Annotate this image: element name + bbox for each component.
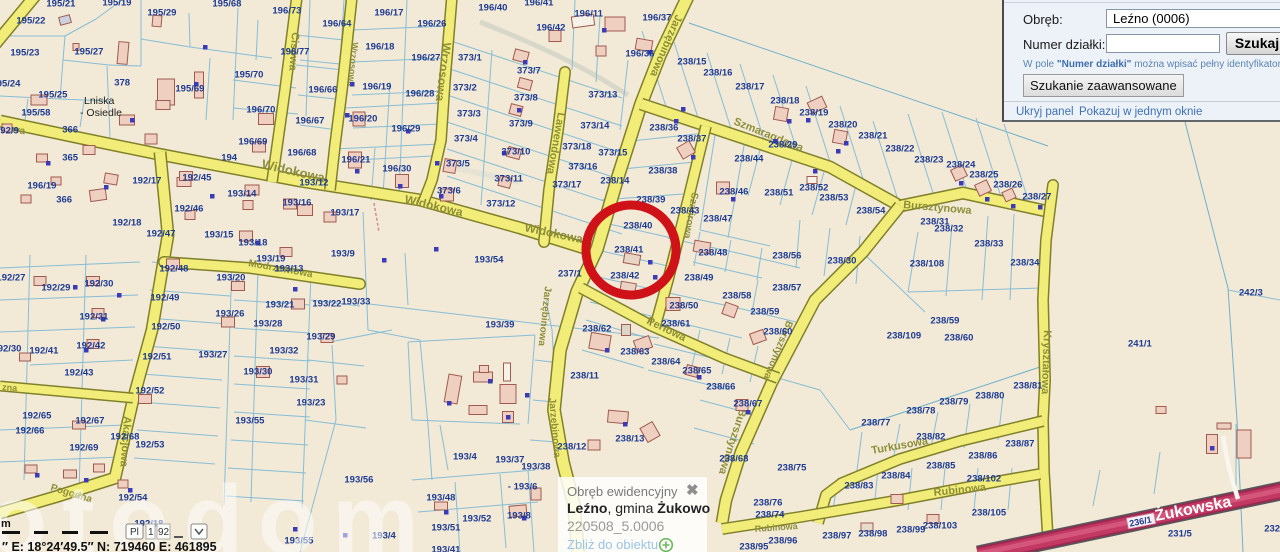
svg-text:238/21: 238/21 (858, 131, 888, 142)
svg-text:238/19: 238/19 (799, 108, 828, 119)
svg-text:92: 92 (158, 527, 170, 538)
svg-text:238/33: 238/33 (974, 239, 1003, 250)
svg-text:373/5: 373/5 (446, 159, 470, 170)
svg-text:242/3: 242/3 (1239, 288, 1263, 299)
svg-text:373/11: 373/11 (494, 174, 523, 185)
svg-text:193/17: 193/17 (330, 208, 359, 219)
svg-text:238/87: 238/87 (1005, 439, 1034, 450)
svg-text:373/10: 373/10 (501, 147, 530, 158)
svg-text:193/54: 193/54 (474, 255, 504, 266)
svg-text:193/12: 193/12 (299, 178, 328, 189)
svg-text:196/70: 196/70 (246, 105, 275, 116)
svg-text:196/27: 196/27 (411, 53, 440, 64)
svg-text:192/43: 192/43 (64, 368, 93, 379)
svg-text:231/5: 231/5 (1168, 529, 1192, 540)
svg-text:238/17: 238/17 (735, 82, 764, 93)
svg-text:193/32: 193/32 (269, 346, 298, 357)
svg-text:192/45: 192/45 (182, 173, 212, 184)
svg-text:193/9: 193/9 (331, 249, 355, 260)
svg-text:193/23: 193/23 (296, 398, 325, 409)
svg-text:238/34: 238/34 (1010, 258, 1040, 269)
svg-text:365: 365 (62, 153, 79, 164)
svg-text:196/64: 196/64 (322, 19, 352, 30)
svg-text:238/77: 238/77 (861, 418, 890, 429)
svg-text:192/47: 192/47 (146, 229, 175, 240)
svg-text:zna: zna (2, 382, 19, 393)
svg-text:195/58: 195/58 (21, 108, 50, 119)
svg-text:238/14: 238/14 (600, 176, 630, 187)
svg-text:193/13: 193/13 (274, 264, 303, 275)
svg-text:373/1: 373/1 (458, 53, 482, 64)
svg-text:192/9: 192/9 (0, 126, 19, 137)
svg-text:373/4: 373/4 (454, 134, 478, 145)
svg-text:193/30: 193/30 (243, 367, 272, 378)
svg-text:192/30: 192/30 (84, 279, 113, 290)
svg-text:238/57: 238/57 (772, 283, 801, 294)
svg-text:238/83: 238/83 (844, 481, 873, 492)
svg-text:238/96: 238/96 (768, 536, 797, 547)
svg-text:192/18: 192/18 (112, 218, 141, 229)
svg-text:- Osiedle: - Osiedle (80, 107, 122, 119)
svg-text:196/42: 196/42 (536, 23, 565, 34)
svg-text:238/78: 238/78 (906, 406, 935, 417)
svg-text:196/17: 196/17 (374, 8, 403, 19)
svg-text:193/37: 193/37 (495, 455, 524, 466)
svg-text:238/36: 238/36 (649, 123, 678, 134)
svg-text:238/40: 238/40 (623, 221, 652, 232)
svg-text:192/30: 192/30 (0, 344, 21, 355)
svg-text:193/21: 193/21 (265, 300, 295, 311)
svg-text:238/105: 238/105 (972, 508, 1007, 519)
svg-text:238/63: 238/63 (620, 347, 649, 358)
svg-text:193/41: 193/41 (431, 545, 461, 553)
svg-text:195/25: 195/25 (38, 90, 68, 101)
svg-text:193/22: 193/22 (312, 299, 341, 310)
svg-text:238/108: 238/108 (910, 259, 944, 270)
svg-text:193/28: 193/28 (253, 319, 282, 330)
svg-text:193/38: 193/38 (521, 462, 550, 473)
svg-text:193/18: 193/18 (238, 238, 267, 249)
svg-text:196/36: 196/36 (625, 49, 654, 60)
svg-text:238/109: 238/109 (887, 331, 921, 342)
svg-text:373/9: 373/9 (509, 119, 533, 130)
svg-text:196/21: 196/21 (341, 155, 371, 166)
svg-text:192/48: 192/48 (159, 264, 188, 275)
svg-text:238/42: 238/42 (610, 271, 639, 282)
svg-text:193/16: 193/16 (282, 198, 311, 209)
svg-text:238/95: 238/95 (739, 542, 769, 553)
svg-text:196/19: 196/19 (362, 82, 391, 93)
svg-text:373/13: 373/13 (588, 90, 617, 101)
svg-text:373/17: 373/17 (552, 180, 581, 191)
svg-text:196/41: 196/41 (524, 0, 554, 9)
svg-text:238/30: 238/30 (827, 256, 856, 267)
svg-text:238/15: 238/15 (677, 57, 707, 68)
svg-text:192/66: 192/66 (15, 426, 44, 437)
svg-text:238/13: 238/13 (615, 434, 644, 445)
svg-text:193/29: 193/29 (306, 332, 335, 343)
svg-text:193/39: 193/39 (485, 320, 514, 331)
svg-text:238/44: 238/44 (734, 154, 764, 165)
svg-text:193/14: 193/14 (227, 189, 257, 200)
svg-text:366: 366 (62, 125, 78, 136)
svg-text:238/85: 238/85 (926, 461, 956, 472)
svg-text:1: 1 (148, 527, 154, 538)
svg-text:195/70: 195/70 (234, 70, 263, 81)
svg-text:196/67: 196/67 (295, 116, 324, 127)
svg-text:193/26: 193/26 (215, 309, 244, 320)
svg-text:238/27: 238/27 (1022, 192, 1051, 203)
svg-text:373/16: 373/16 (568, 162, 597, 173)
svg-text:196/73: 196/73 (272, 6, 301, 17)
svg-text:″ E: 18°24′49.5″ N: 719460: ″ E: 18°24′49.5″ N: 719460 E: 461895 (2, 540, 217, 552)
svg-text:238/58: 238/58 (722, 291, 751, 302)
svg-text:193/33: 193/33 (341, 297, 370, 308)
svg-text:196/29: 196/29 (391, 124, 420, 135)
svg-text:193/20: 193/20 (216, 273, 245, 284)
svg-text:238/103: 238/103 (923, 521, 957, 532)
svg-text:196/28: 196/28 (405, 89, 434, 100)
svg-text:238/54: 238/54 (856, 206, 886, 217)
svg-text:- 193/6: - 193/6 (508, 482, 538, 493)
svg-text:195/69: 195/69 (175, 84, 204, 95)
svg-text:195/27: 195/27 (74, 47, 103, 58)
svg-text:238/99: 238/99 (896, 525, 925, 536)
svg-text:238/81: 238/81 (1013, 381, 1043, 392)
svg-text:195/21: 195/21 (46, 0, 76, 10)
svg-text:366: 366 (56, 195, 72, 206)
svg-text:373/2: 373/2 (453, 83, 477, 94)
svg-text:373/7: 373/7 (517, 66, 541, 77)
svg-text:192/27: 192/27 (0, 273, 25, 284)
svg-text:192/53: 192/53 (135, 440, 164, 451)
svg-text:238/32: 238/32 (934, 224, 963, 235)
svg-text:238/38: 238/38 (648, 166, 677, 177)
svg-text:193/52: 193/52 (462, 514, 491, 525)
svg-text:192/69: 192/69 (69, 443, 98, 454)
svg-text:238/41: 238/41 (614, 245, 644, 256)
svg-text:238/46: 238/46 (719, 187, 748, 198)
svg-text:196/37: 196/37 (642, 13, 671, 24)
svg-text:194: 194 (221, 153, 238, 164)
svg-text:195/23: 195/23 (10, 48, 39, 59)
svg-text:378: 378 (114, 78, 130, 89)
svg-text:238/82: 238/82 (916, 432, 945, 443)
svg-text:232: 232 (1264, 524, 1280, 535)
svg-text:238/53: 238/53 (819, 193, 848, 204)
svg-text:193/4: 193/4 (453, 452, 477, 463)
svg-text:otodom: otodom (0, 465, 434, 552)
svg-text:373/8: 373/8 (514, 93, 538, 104)
svg-text:373/14: 373/14 (580, 121, 610, 132)
svg-text:192/41: 192/41 (29, 346, 59, 357)
svg-text:238/68: 238/68 (719, 454, 748, 465)
svg-text:238/76: 238/76 (753, 498, 782, 509)
svg-text:373/6: 373/6 (437, 186, 461, 197)
svg-text:192/31: 192/31 (79, 312, 109, 323)
svg-text:238/59: 238/59 (930, 316, 959, 327)
svg-text:192/17: 192/17 (132, 176, 161, 187)
svg-text:238/64: 238/64 (651, 357, 681, 368)
svg-text:238/65: 238/65 (682, 366, 712, 377)
svg-text:192/65: 192/65 (22, 411, 52, 422)
svg-text:238/51: 238/51 (764, 188, 794, 199)
svg-text:238/22: 238/22 (885, 144, 914, 155)
svg-text:238/56: 238/56 (772, 251, 801, 262)
svg-text:195/29: 195/29 (147, 8, 176, 19)
svg-text:238/75: 238/75 (777, 463, 807, 474)
svg-text:238/12: 238/12 (557, 442, 586, 453)
svg-text:373/15: 373/15 (598, 148, 628, 159)
svg-text:196/20: 196/20 (348, 114, 377, 125)
svg-text:m: m (1, 518, 11, 530)
svg-text:192/46: 192/46 (174, 204, 203, 215)
svg-text:238/61: 238/61 (661, 319, 691, 330)
svg-text:238/102: 238/102 (967, 474, 1001, 485)
svg-text:196/68: 196/68 (287, 148, 316, 159)
svg-text:193/15: 193/15 (204, 230, 234, 241)
svg-text:238/97: 238/97 (822, 531, 851, 542)
svg-text:238/29: 238/29 (768, 140, 797, 151)
svg-text:238/47: 238/47 (703, 214, 732, 225)
svg-text:238/84: 238/84 (881, 471, 911, 482)
svg-text:192/51: 192/51 (142, 352, 172, 363)
svg-text:238/50: 238/50 (669, 301, 698, 312)
svg-text:193/31: 193/31 (289, 375, 319, 386)
svg-text:238/26: 238/26 (993, 180, 1022, 191)
svg-text:238/59: 238/59 (750, 307, 779, 318)
svg-text:373/3: 373/3 (457, 109, 481, 120)
svg-text:238/60: 238/60 (763, 327, 792, 338)
svg-text:238/60: 238/60 (944, 333, 973, 344)
svg-text:196/66: 196/66 (308, 85, 337, 96)
svg-text:192/50: 192/50 (151, 322, 180, 333)
svg-text:196/26: 196/26 (417, 19, 446, 30)
svg-text:193/8: 193/8 (507, 511, 531, 522)
svg-text:238/67: 238/67 (733, 399, 762, 410)
svg-text:238/11: 238/11 (570, 371, 599, 382)
svg-text:193/27: 193/27 (198, 350, 227, 361)
svg-text:192/52: 192/52 (135, 386, 164, 397)
svg-text:238/16: 238/16 (703, 68, 732, 79)
svg-text:Pl: Pl (130, 527, 139, 538)
svg-text:237/1: 237/1 (558, 269, 582, 280)
svg-text:196/30: 196/30 (382, 164, 411, 175)
svg-text:195/19: 195/19 (102, 0, 131, 9)
svg-text:238/18: 238/18 (770, 96, 799, 107)
svg-text:195/68: 195/68 (212, 0, 241, 10)
svg-text:238/37: 238/37 (677, 134, 706, 145)
svg-text:196/18: 196/18 (365, 42, 394, 53)
svg-text:238/48: 238/48 (698, 248, 727, 259)
svg-text:193/55: 193/55 (235, 416, 265, 427)
svg-text:238/62: 238/62 (582, 324, 611, 335)
svg-text:Lniska: Lniska (84, 95, 115, 107)
svg-text:373/12: 373/12 (486, 199, 515, 210)
svg-text:238/49: 238/49 (684, 273, 713, 284)
svg-text:238/20: 238/20 (828, 120, 857, 131)
svg-text:192/29: 192/29 (41, 283, 70, 294)
svg-text:238/43: 238/43 (670, 206, 699, 217)
svg-text:238/86: 238/86 (968, 451, 997, 462)
svg-text:238/80: 238/80 (975, 391, 1004, 402)
svg-text:192/49: 192/49 (150, 293, 179, 304)
svg-text:192/42: 192/42 (76, 341, 105, 352)
svg-text:196/69: 196/69 (238, 137, 267, 148)
svg-text:196/19: 196/19 (27, 181, 56, 192)
svg-text:196/11: 196/11 (574, 9, 603, 20)
svg-text:195/22: 195/22 (16, 16, 45, 27)
svg-text:238/98: 238/98 (858, 529, 887, 540)
svg-text:238/23: 238/23 (914, 155, 943, 166)
svg-text:238/74: 238/74 (755, 510, 785, 521)
svg-text:193/51: 193/51 (431, 523, 461, 534)
svg-text:238/79: 238/79 (939, 397, 968, 408)
svg-text:238/66: 238/66 (706, 382, 735, 393)
svg-text:241/1: 241/1 (1128, 339, 1152, 350)
svg-text:196/40: 196/40 (478, 3, 507, 14)
svg-text:192/67: 192/67 (75, 416, 104, 427)
svg-text:195/24: 195/24 (0, 79, 21, 90)
svg-text:373/18: 373/18 (562, 142, 591, 153)
svg-text:196/77: 196/77 (280, 47, 309, 58)
